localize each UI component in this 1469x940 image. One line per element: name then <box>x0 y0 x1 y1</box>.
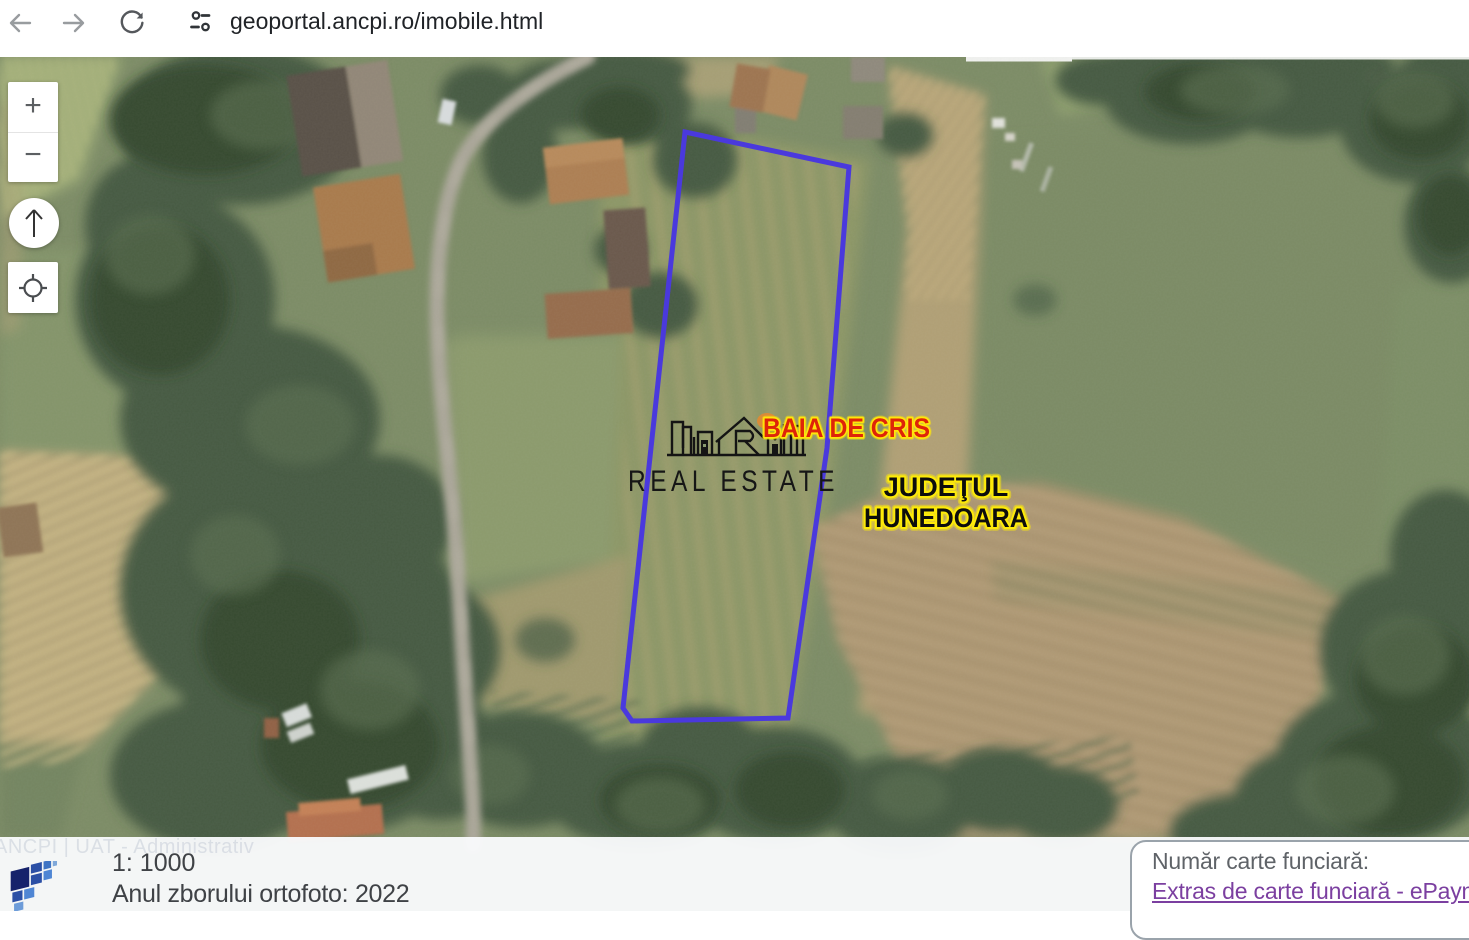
svg-text:JUDEŢUL: JUDEŢUL <box>884 472 1009 502</box>
svg-text:REAL ESTATE: REAL ESTATE <box>628 465 839 498</box>
svg-text:HUNEDOARA: HUNEDOARA <box>864 503 1028 533</box>
svg-text:BAIA DE CRIS: BAIA DE CRIS <box>763 413 930 443</box>
